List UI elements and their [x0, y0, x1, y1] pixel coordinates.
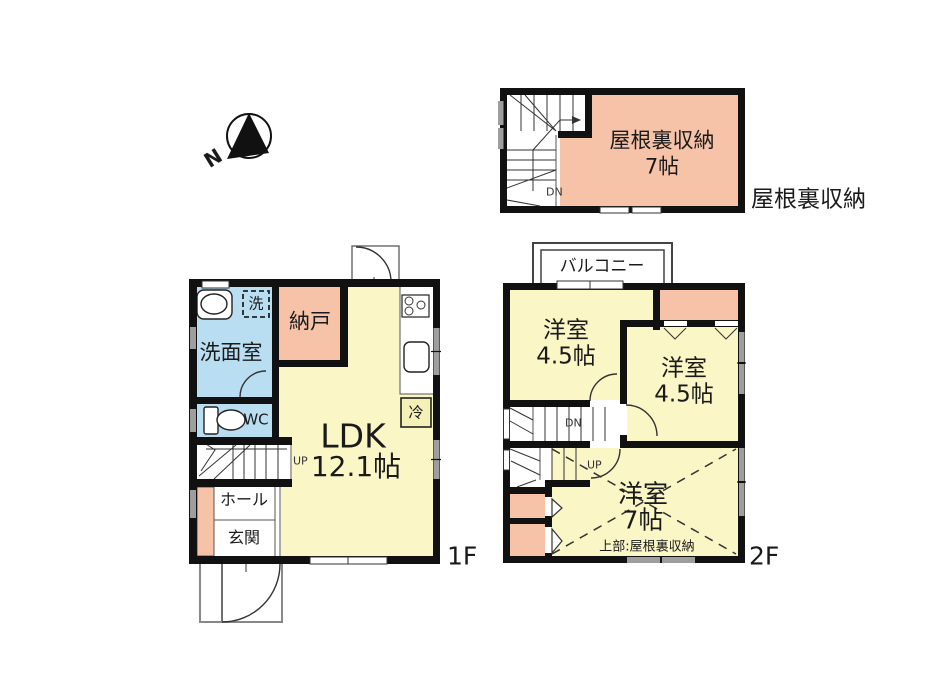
- laundry-label: 洗: [248, 297, 263, 312]
- entrance-porch: [200, 556, 282, 622]
- bedroom-b-size: 4.5帖: [654, 384, 714, 407]
- floor1-plan: [189, 246, 441, 622]
- fridge-label: 冷: [408, 406, 423, 421]
- floor2-closet-left-1: [510, 494, 545, 518]
- compass-icon: [227, 113, 271, 159]
- washbasin-icon: [197, 290, 232, 319]
- attic-dn-label: DN: [546, 187, 563, 198]
- floor2-label: 2F: [749, 544, 779, 569]
- floorplan-drawing: [0, 0, 948, 682]
- floor2-window-right: [739, 332, 745, 362]
- floor2-closet-left-2: [510, 524, 545, 556]
- floor1-window-left: [190, 327, 196, 349]
- floor1-up-label: UP: [293, 456, 308, 467]
- bedroom-a-name: 洋室: [543, 320, 589, 343]
- stove-icon: [402, 295, 429, 317]
- entrance-label: 玄関: [228, 530, 260, 546]
- bedroom-c-name: 洋室: [618, 482, 668, 507]
- bedroom-b-name: 洋室: [661, 358, 707, 381]
- floor2-up-label: UP: [587, 460, 602, 471]
- wc-label: WC: [243, 413, 268, 428]
- balcony-label: バルコニー: [560, 259, 645, 276]
- floor2-window-bottom: [627, 557, 660, 563]
- floorplan-canvas: N 屋根裏収納 7帖 DN 屋根裏収納 洗面室 洗 納戸 WC LDK 12.1…: [0, 0, 948, 682]
- kitchen-sink-icon: [404, 342, 429, 372]
- bedroom-c-note: 上部:屋根裏収納: [599, 541, 694, 554]
- shoe-cabinet: [197, 487, 214, 556]
- floor2-closet-top: [660, 290, 738, 320]
- floor1-label: 1F: [447, 544, 477, 569]
- floor1-window-right: [434, 328, 440, 351]
- attic-room-size: 7帖: [645, 157, 679, 178]
- storeroom-label: 納戸: [289, 312, 331, 333]
- attic-room-name: 屋根裏収納: [610, 131, 715, 152]
- attic-window-bottom: [600, 207, 629, 213]
- ldk-name-label: LDK: [320, 420, 385, 453]
- washroom-label: 洗面室: [200, 343, 263, 364]
- bedroom-c-size: 7帖: [623, 508, 664, 533]
- attic-outside-label: 屋根裏収納: [751, 189, 866, 212]
- ldk-size-label: 12.1帖: [311, 453, 401, 481]
- floor2-dn-label: DN: [565, 418, 582, 429]
- hall-label: ホール: [220, 492, 268, 508]
- attic-window-left: [498, 101, 504, 125]
- bedroom-a-size: 4.5帖: [536, 346, 596, 369]
